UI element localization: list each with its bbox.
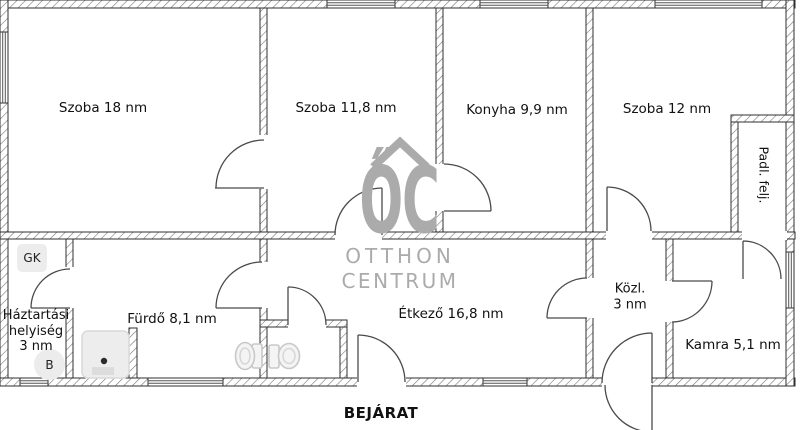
wall-shower-stub bbox=[129, 328, 137, 378]
wall-right bbox=[786, 0, 794, 386]
window bbox=[327, 0, 395, 8]
door-haztartasi bbox=[31, 269, 70, 308]
room-label-furdo: Fürdő 8,1 nm bbox=[127, 311, 216, 327]
entrance-label: BEJÁRAT bbox=[344, 404, 419, 422]
room-label-szoba118: Szoba 11,8 nm bbox=[295, 100, 396, 116]
window bbox=[483, 378, 527, 386]
door-padlfelj bbox=[743, 241, 781, 279]
window bbox=[0, 32, 8, 103]
toilet-wc bbox=[269, 344, 300, 369]
room-label-konyha: Konyha 9,9 nm bbox=[466, 102, 568, 118]
window bbox=[480, 0, 548, 8]
toilet-furdo bbox=[236, 343, 263, 370]
door-szoba18 bbox=[215, 140, 264, 188]
door-kozl-etkezo bbox=[547, 278, 587, 318]
shower-tray bbox=[82, 331, 129, 378]
window bbox=[148, 378, 223, 386]
window bbox=[655, 0, 762, 8]
wall-konyha-szoba12 bbox=[586, 8, 593, 232]
door-entrance-inner bbox=[358, 335, 405, 382]
door-konyha bbox=[444, 164, 491, 211]
room-label-kozl-line2: 3 nm bbox=[613, 297, 646, 313]
door-kozl bbox=[602, 333, 652, 383]
room-label-haztartasi-line1: Háztartási bbox=[3, 308, 69, 324]
room-label-etkezo: Étkező 16,8 nm bbox=[398, 306, 503, 322]
room-label-kozl-line1: Közl. bbox=[613, 282, 646, 298]
door-entrance-outer bbox=[605, 385, 652, 430]
door-kamra bbox=[672, 281, 712, 322]
wall-padlfelj-top bbox=[731, 115, 794, 122]
room-label-kozl: Közl. 3 nm bbox=[613, 282, 646, 313]
room-label-szoba12: Szoba 12 nm bbox=[623, 101, 711, 117]
room-label-haztartasi-line2: helyiség bbox=[3, 323, 69, 339]
watermark-logo: ŐC bbox=[359, 147, 438, 254]
window bbox=[786, 252, 794, 308]
room-label-kamra: Kamra 5,1 nm bbox=[685, 337, 781, 353]
room-label-haztartasi: Háztartási helyiség 3 nm bbox=[3, 308, 69, 355]
room-label-szoba18: Szoba 18 nm bbox=[59, 100, 147, 116]
watermark-centrum: CENTRUM bbox=[341, 269, 458, 293]
watermark-otthon: OTTHON bbox=[345, 244, 455, 268]
door-furdo bbox=[216, 262, 262, 308]
gk-badge: GK bbox=[17, 244, 47, 272]
wall-szoba18-szoba118 bbox=[260, 8, 267, 232]
wall-wc-right bbox=[340, 327, 347, 378]
room-label-haztartasi-line3: 3 nm bbox=[3, 339, 69, 355]
room-label-padl-felj: Padl. felj. bbox=[757, 146, 772, 203]
door-szoba12 bbox=[607, 187, 651, 231]
floorplan: ŐC OTTHON CENTRUM Szoba 18 nm Szoba 11,8… bbox=[0, 0, 800, 430]
wall-padlfelj-left bbox=[731, 122, 738, 232]
